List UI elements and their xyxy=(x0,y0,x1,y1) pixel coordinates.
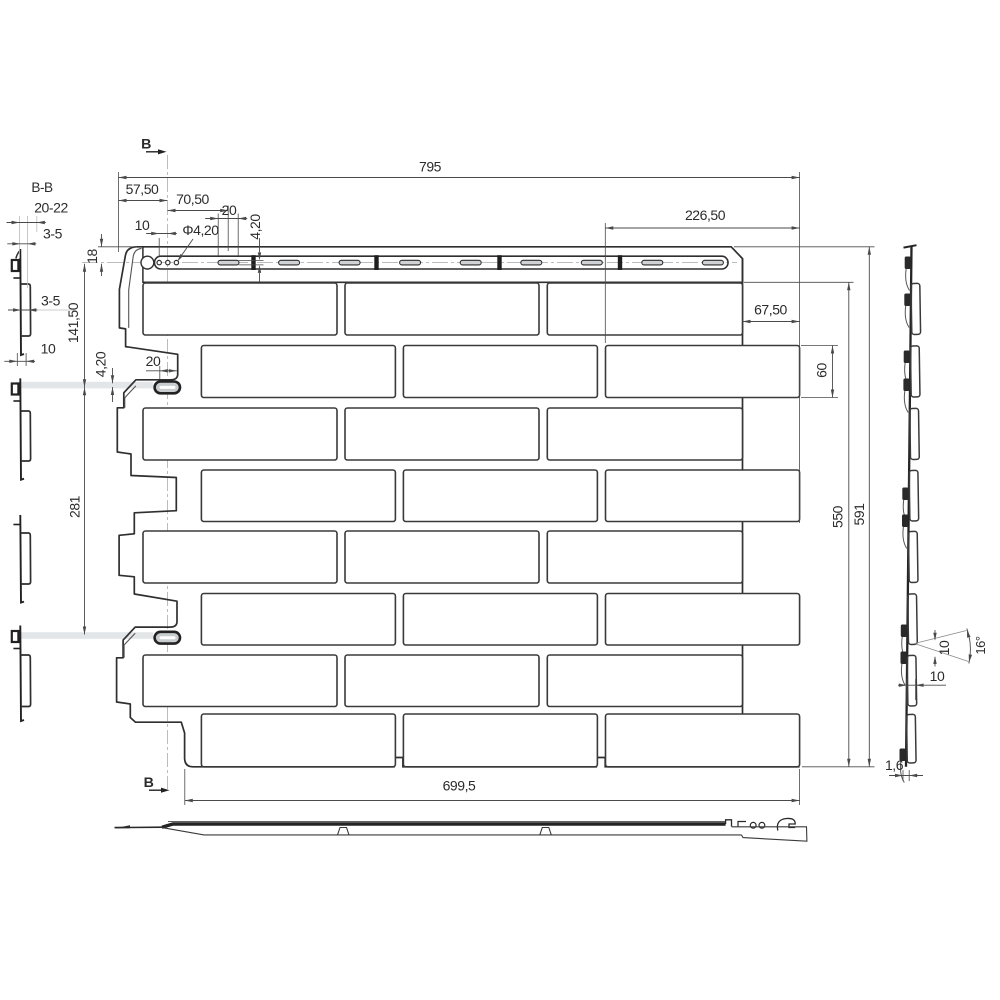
svg-text:18: 18 xyxy=(84,249,100,264)
svg-text:B: B xyxy=(144,775,154,791)
svg-text:Φ4,20: Φ4,20 xyxy=(182,222,219,238)
svg-text:B: B xyxy=(141,136,151,152)
svg-text:1,6: 1,6 xyxy=(885,757,904,773)
svg-text:4,20: 4,20 xyxy=(93,351,109,377)
svg-text:4,20: 4,20 xyxy=(247,214,263,240)
svg-text:57,50: 57,50 xyxy=(126,181,159,197)
svg-text:70,50: 70,50 xyxy=(176,191,209,207)
svg-text:591: 591 xyxy=(851,503,867,526)
svg-text:226,50: 226,50 xyxy=(685,207,726,223)
svg-text:699,5: 699,5 xyxy=(443,778,476,794)
svg-text:10: 10 xyxy=(936,640,952,655)
svg-text:10: 10 xyxy=(135,217,150,233)
svg-text:550: 550 xyxy=(830,505,846,528)
svg-text:20: 20 xyxy=(222,202,237,218)
svg-text:67,50: 67,50 xyxy=(754,302,787,318)
svg-text:3-5: 3-5 xyxy=(43,226,63,242)
svg-text:3-5: 3-5 xyxy=(41,293,61,309)
svg-text:20: 20 xyxy=(146,353,161,369)
svg-text:B-B: B-B xyxy=(31,180,53,195)
svg-text:281: 281 xyxy=(67,495,83,518)
svg-text:795: 795 xyxy=(419,159,442,175)
svg-text:20-22: 20-22 xyxy=(34,200,68,216)
svg-text:60: 60 xyxy=(814,363,830,378)
svg-text:141,50: 141,50 xyxy=(65,302,81,343)
svg-text:10: 10 xyxy=(930,668,945,684)
svg-text:10: 10 xyxy=(41,341,56,357)
svg-text:16°: 16° xyxy=(973,636,988,655)
